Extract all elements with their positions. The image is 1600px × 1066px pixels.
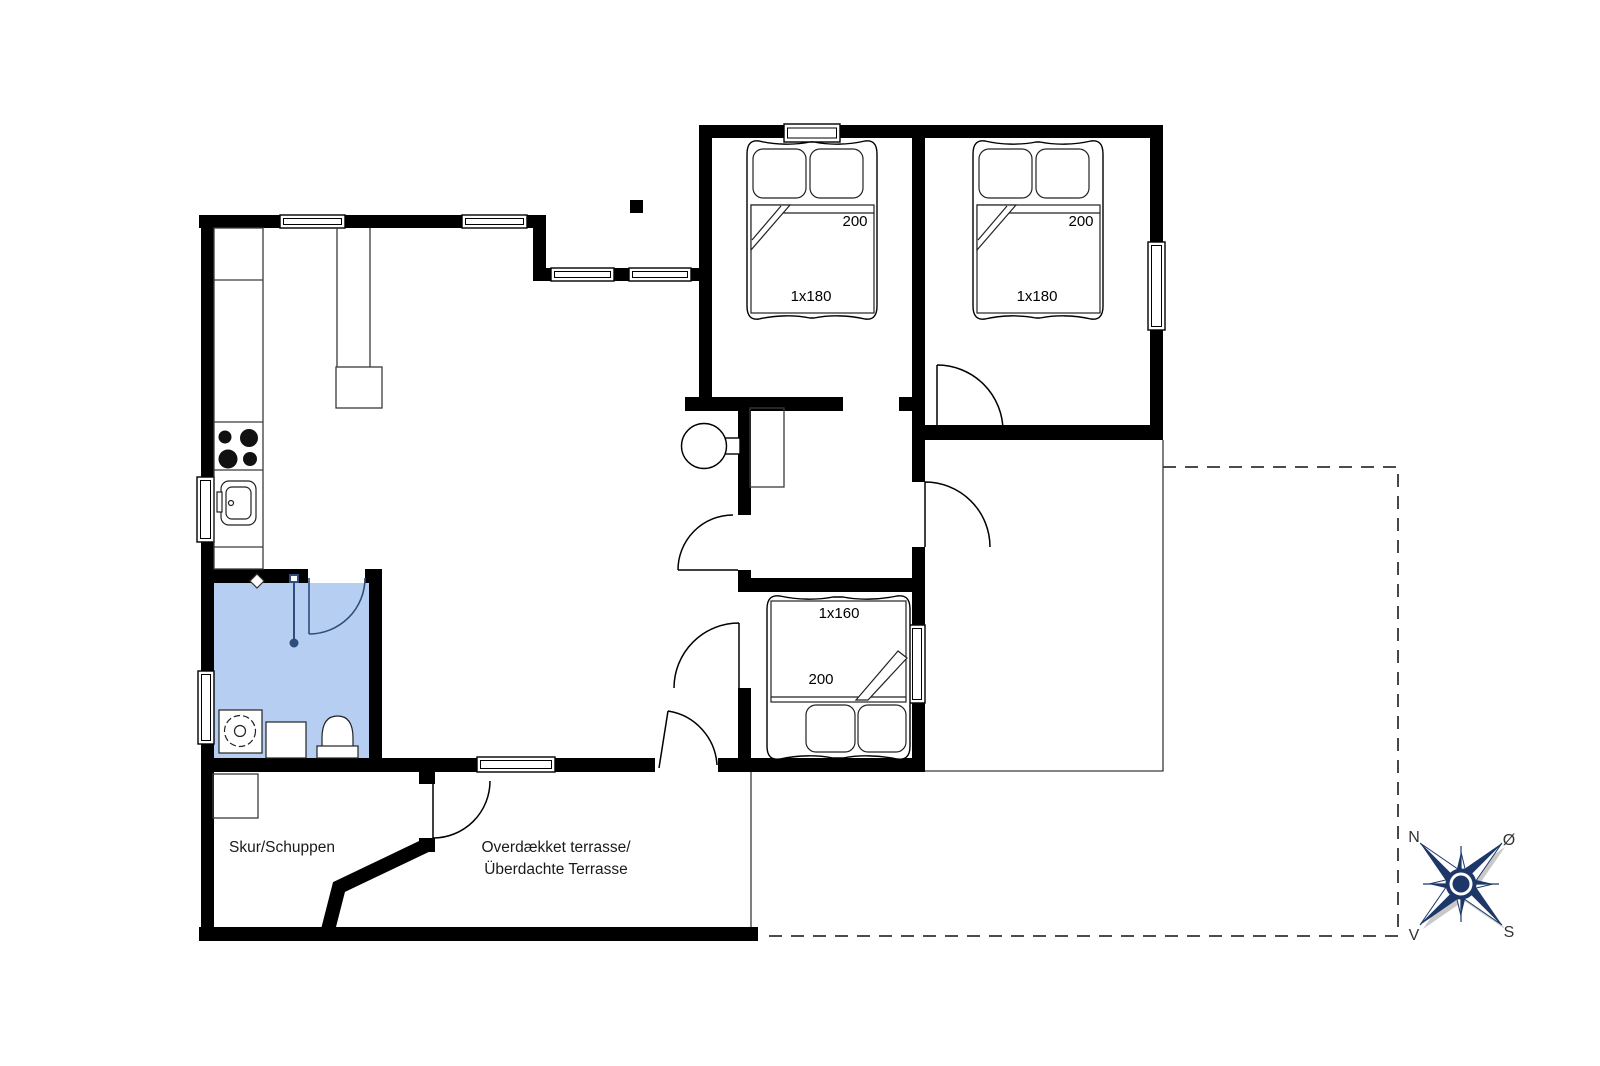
bed2-length-label: 200 (1068, 213, 1093, 230)
bed1-pillow-left (753, 149, 806, 198)
stove-burners (219, 429, 259, 469)
bed3-pillow-left (806, 705, 855, 752)
bed2-pillow-left (979, 149, 1032, 198)
chimney (336, 228, 382, 408)
wall-bedroom2-south (925, 425, 1150, 440)
wall-bedroom1-left (699, 138, 712, 411)
wall-south-c (718, 758, 925, 772)
bed2-size-label: 1x180 (1017, 288, 1058, 305)
washbasin (266, 722, 306, 758)
hall-fixtures (682, 408, 785, 487)
compass-east-label: Ø (1503, 832, 1515, 849)
terrace-label-line1: Overdækket terrasse/ (481, 839, 631, 856)
wall-shed-diagonal (328, 845, 427, 930)
shower-partition-end-dot (291, 640, 298, 647)
bed2-pillow-right (1036, 149, 1089, 198)
wall-bedroom1-south (685, 397, 843, 411)
wall-south-b (555, 758, 655, 772)
bed3-size-label: 1x160 (819, 605, 860, 622)
shed-label: Skur/Schuppen (229, 839, 335, 856)
wall-shed-stub-top (419, 772, 435, 784)
window-top-1 (280, 215, 345, 228)
bathroom (214, 574, 369, 758)
window-bedroom3-east (909, 625, 925, 703)
wall-bedroom-divider (912, 138, 925, 440)
bed3-pillow-right (858, 705, 906, 752)
floor-plan-drawing: 200 1x180 200 1x180 1x160 200 Skur/Schup… (0, 0, 1600, 1066)
bed-single-3: 1x160 200 (767, 596, 910, 759)
shower-partition-top-dot (290, 575, 298, 582)
door-entrance (659, 711, 717, 768)
compass-south-label: S (1504, 924, 1515, 941)
wall-hall-east-upper (912, 440, 925, 482)
window-top-2 (462, 215, 527, 228)
compass-west-label: V (1409, 927, 1420, 944)
terrace-label-line2: Überdachte Terrasse (484, 860, 628, 878)
bed-double-2: 200 1x180 (973, 141, 1103, 319)
window-bedroom2-right (1148, 242, 1165, 330)
window-bedroom1-top (784, 124, 840, 142)
kitchen (214, 228, 382, 569)
wood-stove (682, 424, 741, 469)
door-bedroom2 (937, 365, 1003, 431)
wardrobe (750, 408, 784, 487)
bed1-pillow-right (810, 149, 863, 198)
wall-post (630, 200, 643, 213)
wall-bedroom1-south-stub (899, 397, 912, 411)
bed-double-1: 200 1x180 (747, 141, 877, 319)
kitchen-sink (217, 481, 256, 525)
wall-bath-right (369, 569, 382, 772)
door-shed-terrace (433, 781, 490, 838)
shed-bench (213, 774, 258, 818)
window-top-4 (629, 268, 691, 281)
door-bedroom3 (674, 623, 739, 688)
compass-north-label: N (1408, 829, 1420, 846)
wall-south-a (201, 758, 477, 772)
door-living-hall (678, 515, 738, 570)
wall-shed-bottom (199, 927, 758, 941)
bed1-length-label: 200 (842, 213, 867, 230)
bed1-size-label: 1x180 (791, 288, 832, 305)
window-kitchen-left (197, 477, 214, 542)
door-hall-annex (925, 482, 990, 547)
shower-drain (219, 710, 262, 753)
wall-bedroom3-top (738, 578, 913, 592)
window-terrace-south (477, 757, 555, 772)
compass-rose: N Ø S V (1379, 802, 1546, 970)
bed3-length-label: 200 (808, 671, 833, 688)
compass-star (1379, 802, 1543, 966)
wall-bedrooms-top (699, 125, 1163, 138)
annex-thin-boundary (925, 440, 1163, 771)
window-top-3 (551, 268, 614, 281)
window-bathroom-left (198, 671, 214, 744)
wall-bedroom3-west (738, 688, 751, 758)
wall-hall-west-upper (738, 411, 751, 515)
floor-plan-page: 200 1x180 200 1x180 1x160 200 Skur/Schup… (0, 0, 1600, 1066)
